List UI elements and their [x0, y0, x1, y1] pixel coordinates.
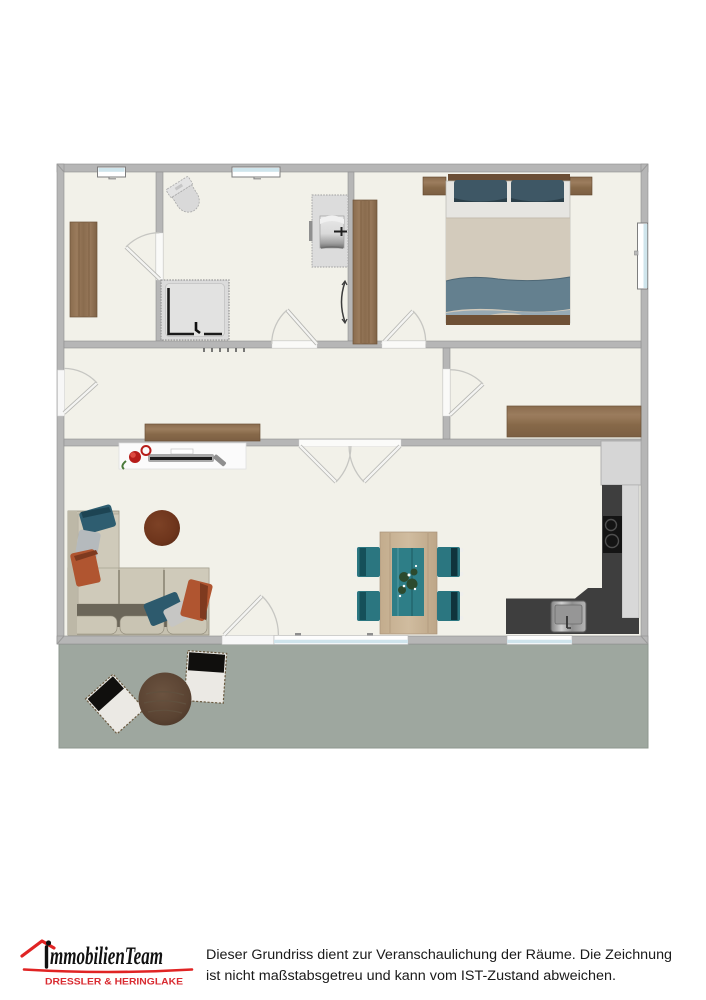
svg-text:Dieser Grundriss dient zur Ver: Dieser Grundriss dient zur Veranschaulic… [206, 947, 672, 962]
svg-text:ist nicht maßstabsgetreu und k: ist nicht maßstabsgetreu und kann vom IS… [206, 968, 616, 983]
svg-text:mmobilienTeam: mmobilienTeam [50, 943, 163, 970]
svg-text:DRESSLER & HERINGLAKE: DRESSLER & HERINGLAKE [45, 977, 183, 988]
